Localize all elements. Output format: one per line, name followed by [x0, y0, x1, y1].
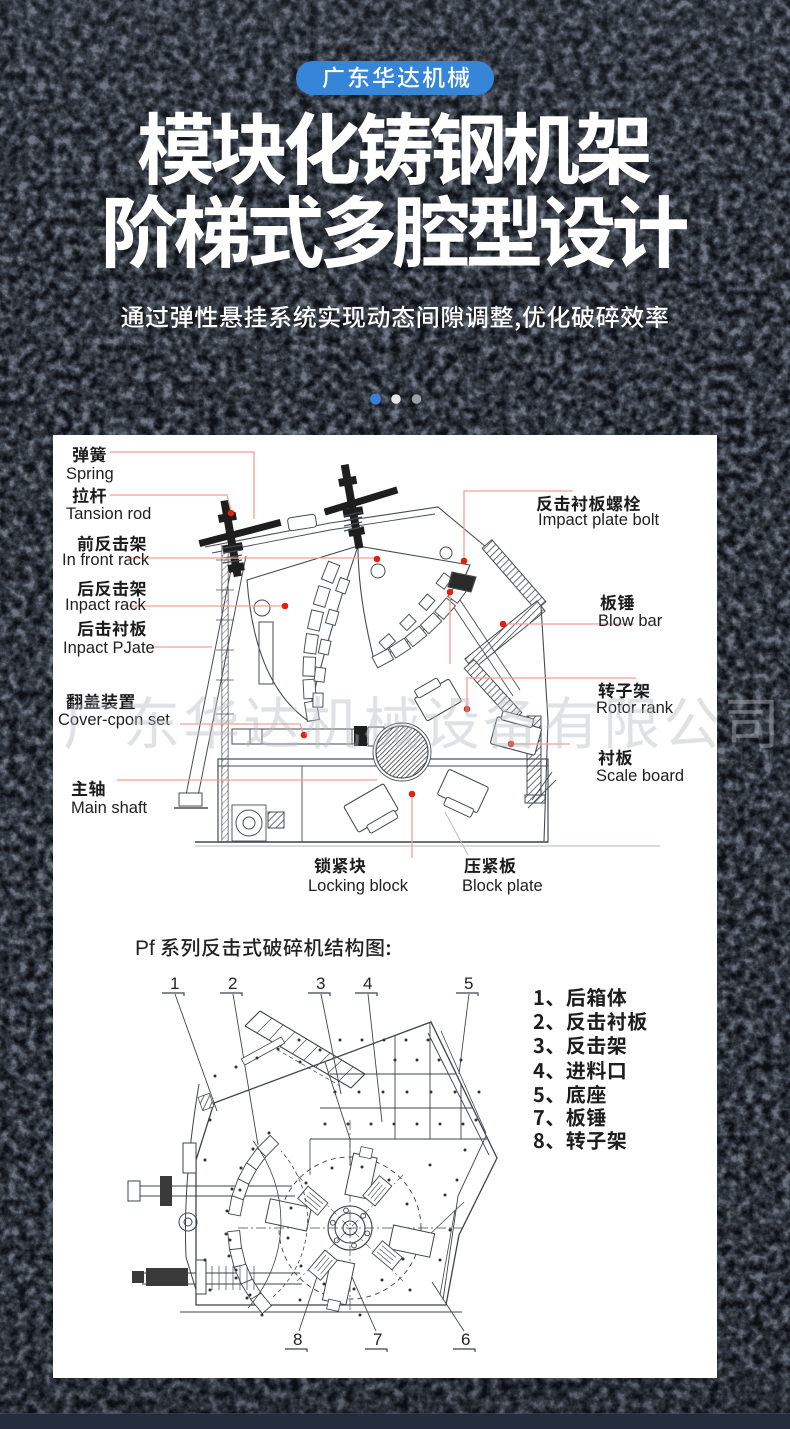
svg-text:In front rack: In front rack — [62, 551, 150, 569]
svg-text:Main shaft: Main shaft — [71, 799, 148, 817]
svg-text:6: 6 — [461, 1330, 470, 1349]
svg-text:5: 5 — [464, 974, 473, 993]
svg-text:Block plate: Block plate — [462, 877, 543, 895]
svg-text:1: 1 — [170, 974, 179, 993]
svg-text:Tansion rod: Tansion rod — [66, 505, 151, 523]
svg-text:2: 2 — [228, 974, 237, 993]
svg-text:Pf: Pf — [135, 937, 155, 960]
svg-text:Inpact PJate: Inpact PJate — [63, 639, 155, 657]
svg-text:Spring: Spring — [66, 465, 114, 483]
svg-text:4: 4 — [363, 974, 372, 993]
svg-text:8: 8 — [293, 1330, 302, 1349]
svg-text:Inpact rack: Inpact rack — [65, 596, 146, 614]
svg-text:Blow bar: Blow bar — [598, 612, 663, 630]
svg-text:3: 3 — [316, 974, 325, 993]
svg-text:7: 7 — [373, 1330, 382, 1349]
svg-text:Locking block: Locking block — [308, 877, 409, 895]
svg-text:Impact plate bolt: Impact plate bolt — [538, 511, 659, 529]
